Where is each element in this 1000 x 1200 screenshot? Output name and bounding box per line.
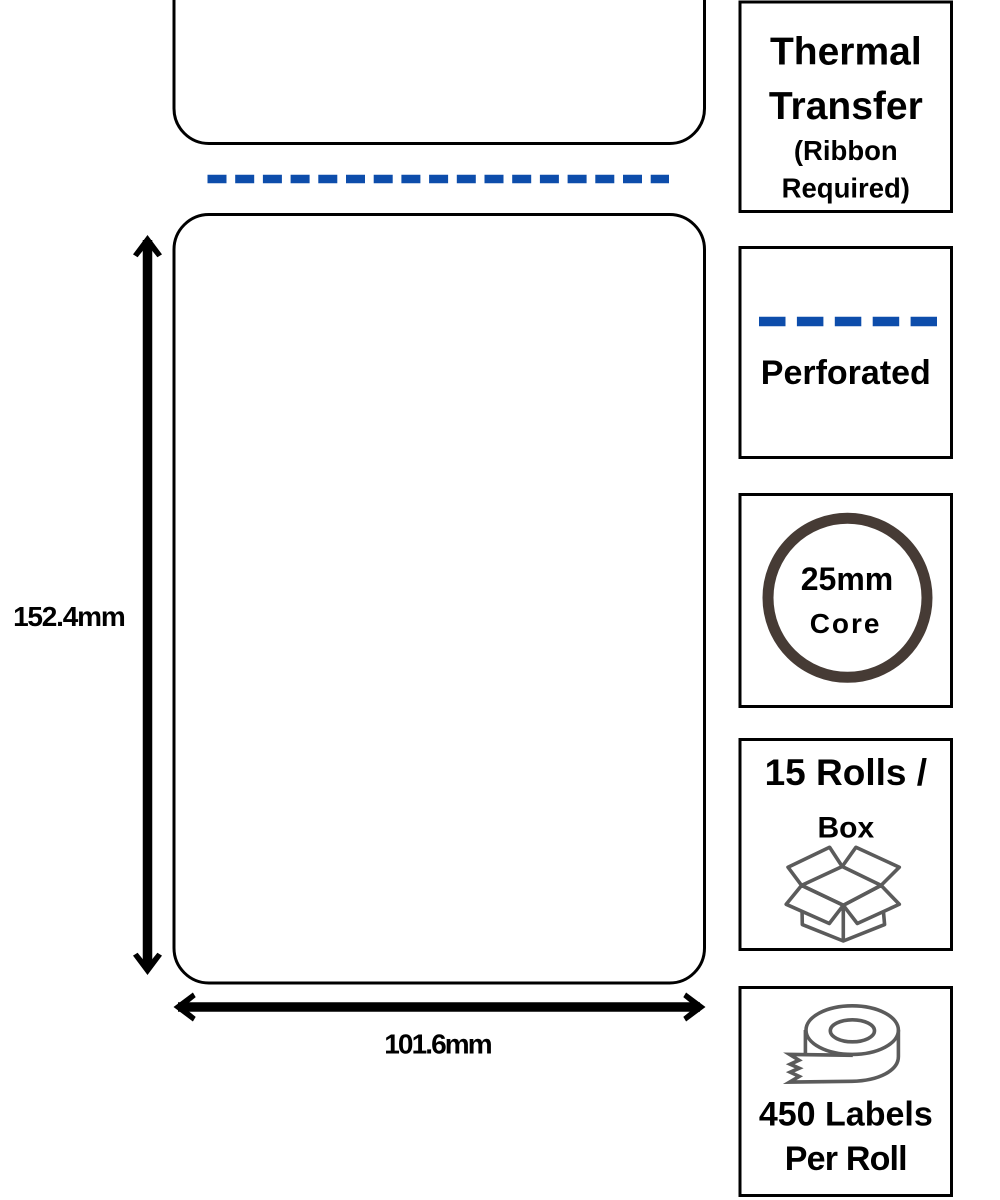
svg-text:(Ribbon: (Ribbon — [794, 135, 898, 166]
svg-text:Per Roll: Per Roll — [785, 1140, 907, 1178]
svg-text:Required): Required) — [782, 173, 910, 204]
svg-text:Box: Box — [817, 812, 874, 845]
svg-text:152.4mm: 152.4mm — [13, 601, 125, 632]
svg-text:101.6mm: 101.6mm — [384, 1029, 492, 1060]
svg-text:Perforated: Perforated — [761, 354, 931, 392]
svg-text:15 Rolls /: 15 Rolls / — [765, 752, 927, 793]
svg-text:25mm: 25mm — [801, 561, 894, 597]
svg-text:Transfer: Transfer — [769, 85, 923, 128]
svg-text:Thermal: Thermal — [770, 30, 922, 73]
svg-text:450 Labels: 450 Labels — [759, 1096, 933, 1134]
svg-text:Core: Core — [810, 608, 882, 639]
